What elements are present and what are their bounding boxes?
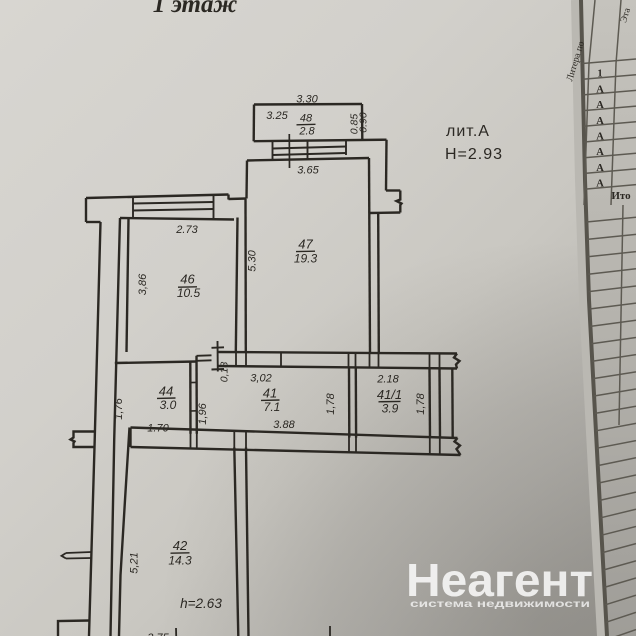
- svg-text:система недвижимости: система недвижимости: [410, 598, 590, 610]
- svg-text:2.18: 2.18: [376, 374, 399, 386]
- svg-text:10.5: 10.5: [177, 286, 201, 300]
- svg-text:19.3: 19.3: [294, 252, 318, 266]
- svg-text:А: А: [596, 163, 604, 174]
- svg-text:3,02: 3,02: [250, 373, 271, 385]
- svg-text:А: А: [596, 84, 604, 95]
- svg-text:А: А: [596, 100, 604, 111]
- svg-text:44: 44: [159, 384, 173, 399]
- svg-text:Н=2.93: Н=2.93: [445, 146, 503, 163]
- svg-text:41/1: 41/1: [377, 387, 402, 402]
- svg-text:А: А: [596, 132, 604, 143]
- svg-text:3.30: 3.30: [296, 94, 318, 106]
- svg-text:1 этаж: 1 этаж: [153, 0, 238, 18]
- svg-text:5.30: 5.30: [247, 249, 259, 271]
- svg-text:46: 46: [180, 272, 195, 287]
- svg-text:3,86: 3,86: [137, 273, 149, 295]
- svg-text:1,78: 1,78: [415, 392, 427, 414]
- svg-text:3.88: 3.88: [273, 419, 295, 431]
- svg-text:0,18: 0,18: [219, 362, 231, 383]
- svg-text:2.8: 2.8: [298, 126, 315, 138]
- svg-text:0.90: 0.90: [358, 112, 370, 133]
- svg-text:3.25: 3.25: [266, 110, 288, 122]
- svg-text:1: 1: [597, 69, 602, 80]
- svg-text:1,96: 1,96: [197, 402, 209, 424]
- svg-text:3.0: 3.0: [160, 398, 177, 412]
- svg-text:41: 41: [263, 386, 277, 401]
- svg-text:Ито: Ито: [611, 190, 631, 202]
- svg-text:5,21: 5,21: [129, 552, 141, 573]
- svg-text:А: А: [596, 179, 604, 190]
- svg-text:А: А: [596, 116, 604, 127]
- svg-text:лит.А: лит.А: [446, 123, 490, 140]
- svg-text:1.70: 1.70: [147, 423, 169, 435]
- svg-text:7.1: 7.1: [264, 400, 281, 414]
- svg-text:h=2.63: h=2.63: [180, 596, 222, 611]
- svg-text:48: 48: [300, 113, 313, 125]
- svg-text:47: 47: [298, 237, 313, 252]
- svg-text:3.65: 3.65: [297, 165, 319, 177]
- svg-text:1,76: 1,76: [113, 397, 125, 419]
- svg-text:2.73: 2.73: [175, 224, 198, 236]
- svg-text:42: 42: [173, 538, 188, 553]
- svg-text:14.3: 14.3: [168, 554, 192, 568]
- svg-text:3.75: 3.75: [147, 632, 169, 636]
- svg-text:1,78: 1,78: [325, 392, 337, 414]
- svg-text:3.9: 3.9: [382, 402, 399, 416]
- svg-text:А: А: [596, 147, 604, 158]
